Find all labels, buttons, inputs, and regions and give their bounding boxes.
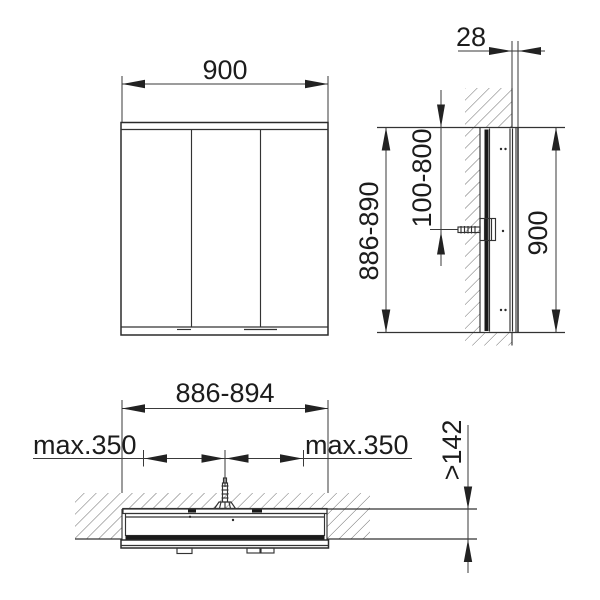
- dim-plan-max-offsets: max.350 max.350: [33, 430, 412, 487]
- arrowhead-right: [305, 80, 328, 89]
- dim-plan-recess-depth-label: >142: [437, 420, 467, 481]
- mirror-door: [121, 540, 329, 548]
- dim-plan-recess-depth: >142: [437, 420, 472, 573]
- arrowhead-up: [552, 128, 561, 151]
- front-view: 900: [121, 55, 328, 335]
- dim-side-protrusion-label: 28: [456, 22, 486, 52]
- arrowhead-right: [202, 454, 225, 463]
- dim-plan-max-left-label: max.350: [33, 430, 137, 460]
- dim-side-height-label: 900: [523, 210, 553, 255]
- cabinet-front: [121, 123, 328, 336]
- dim-side-height: 900: [523, 128, 560, 333]
- arrowhead-right: [305, 404, 328, 413]
- dim-side-mounting-range-label: 100-800: [407, 128, 437, 227]
- arrowhead-down: [464, 487, 472, 510]
- dim-front-width: 900: [122, 55, 328, 122]
- dim-plan-max-right-label: max.350: [305, 430, 409, 460]
- arrowhead-down: [382, 310, 391, 333]
- arrowhead-left: [226, 454, 249, 463]
- arrowhead-left: [122, 80, 145, 89]
- dim-front-width-label: 900: [202, 55, 247, 85]
- arrowhead-up: [382, 128, 391, 151]
- dim-plan-recess-width-label: 886-894: [175, 378, 274, 408]
- dim-side-recess-height: 886-890: [354, 128, 390, 333]
- plan-view: 886-894 max.350 max.350: [33, 378, 477, 573]
- side-view: 28: [354, 22, 565, 346]
- cabinet-front-outline: [121, 123, 328, 336]
- arrowhead-left: [145, 454, 168, 463]
- arrowhead-down: [552, 310, 561, 333]
- arrowhead-up: [464, 540, 472, 563]
- dim-side-recess-height-label: 886-890: [354, 181, 384, 280]
- cabinet-plan-section: [121, 509, 329, 554]
- arrowhead-right: [280, 454, 303, 463]
- arrowhead-right: [489, 47, 512, 55]
- dim-side-mounting-range: 100-800: [407, 90, 445, 266]
- technical-drawing: 900 28: [0, 0, 600, 600]
- arrowhead-left: [122, 404, 145, 413]
- arrowhead-left: [519, 47, 542, 55]
- arrowhead-down: [437, 105, 445, 128]
- door-handle: [177, 548, 192, 554]
- arrowhead-up: [437, 232, 445, 255]
